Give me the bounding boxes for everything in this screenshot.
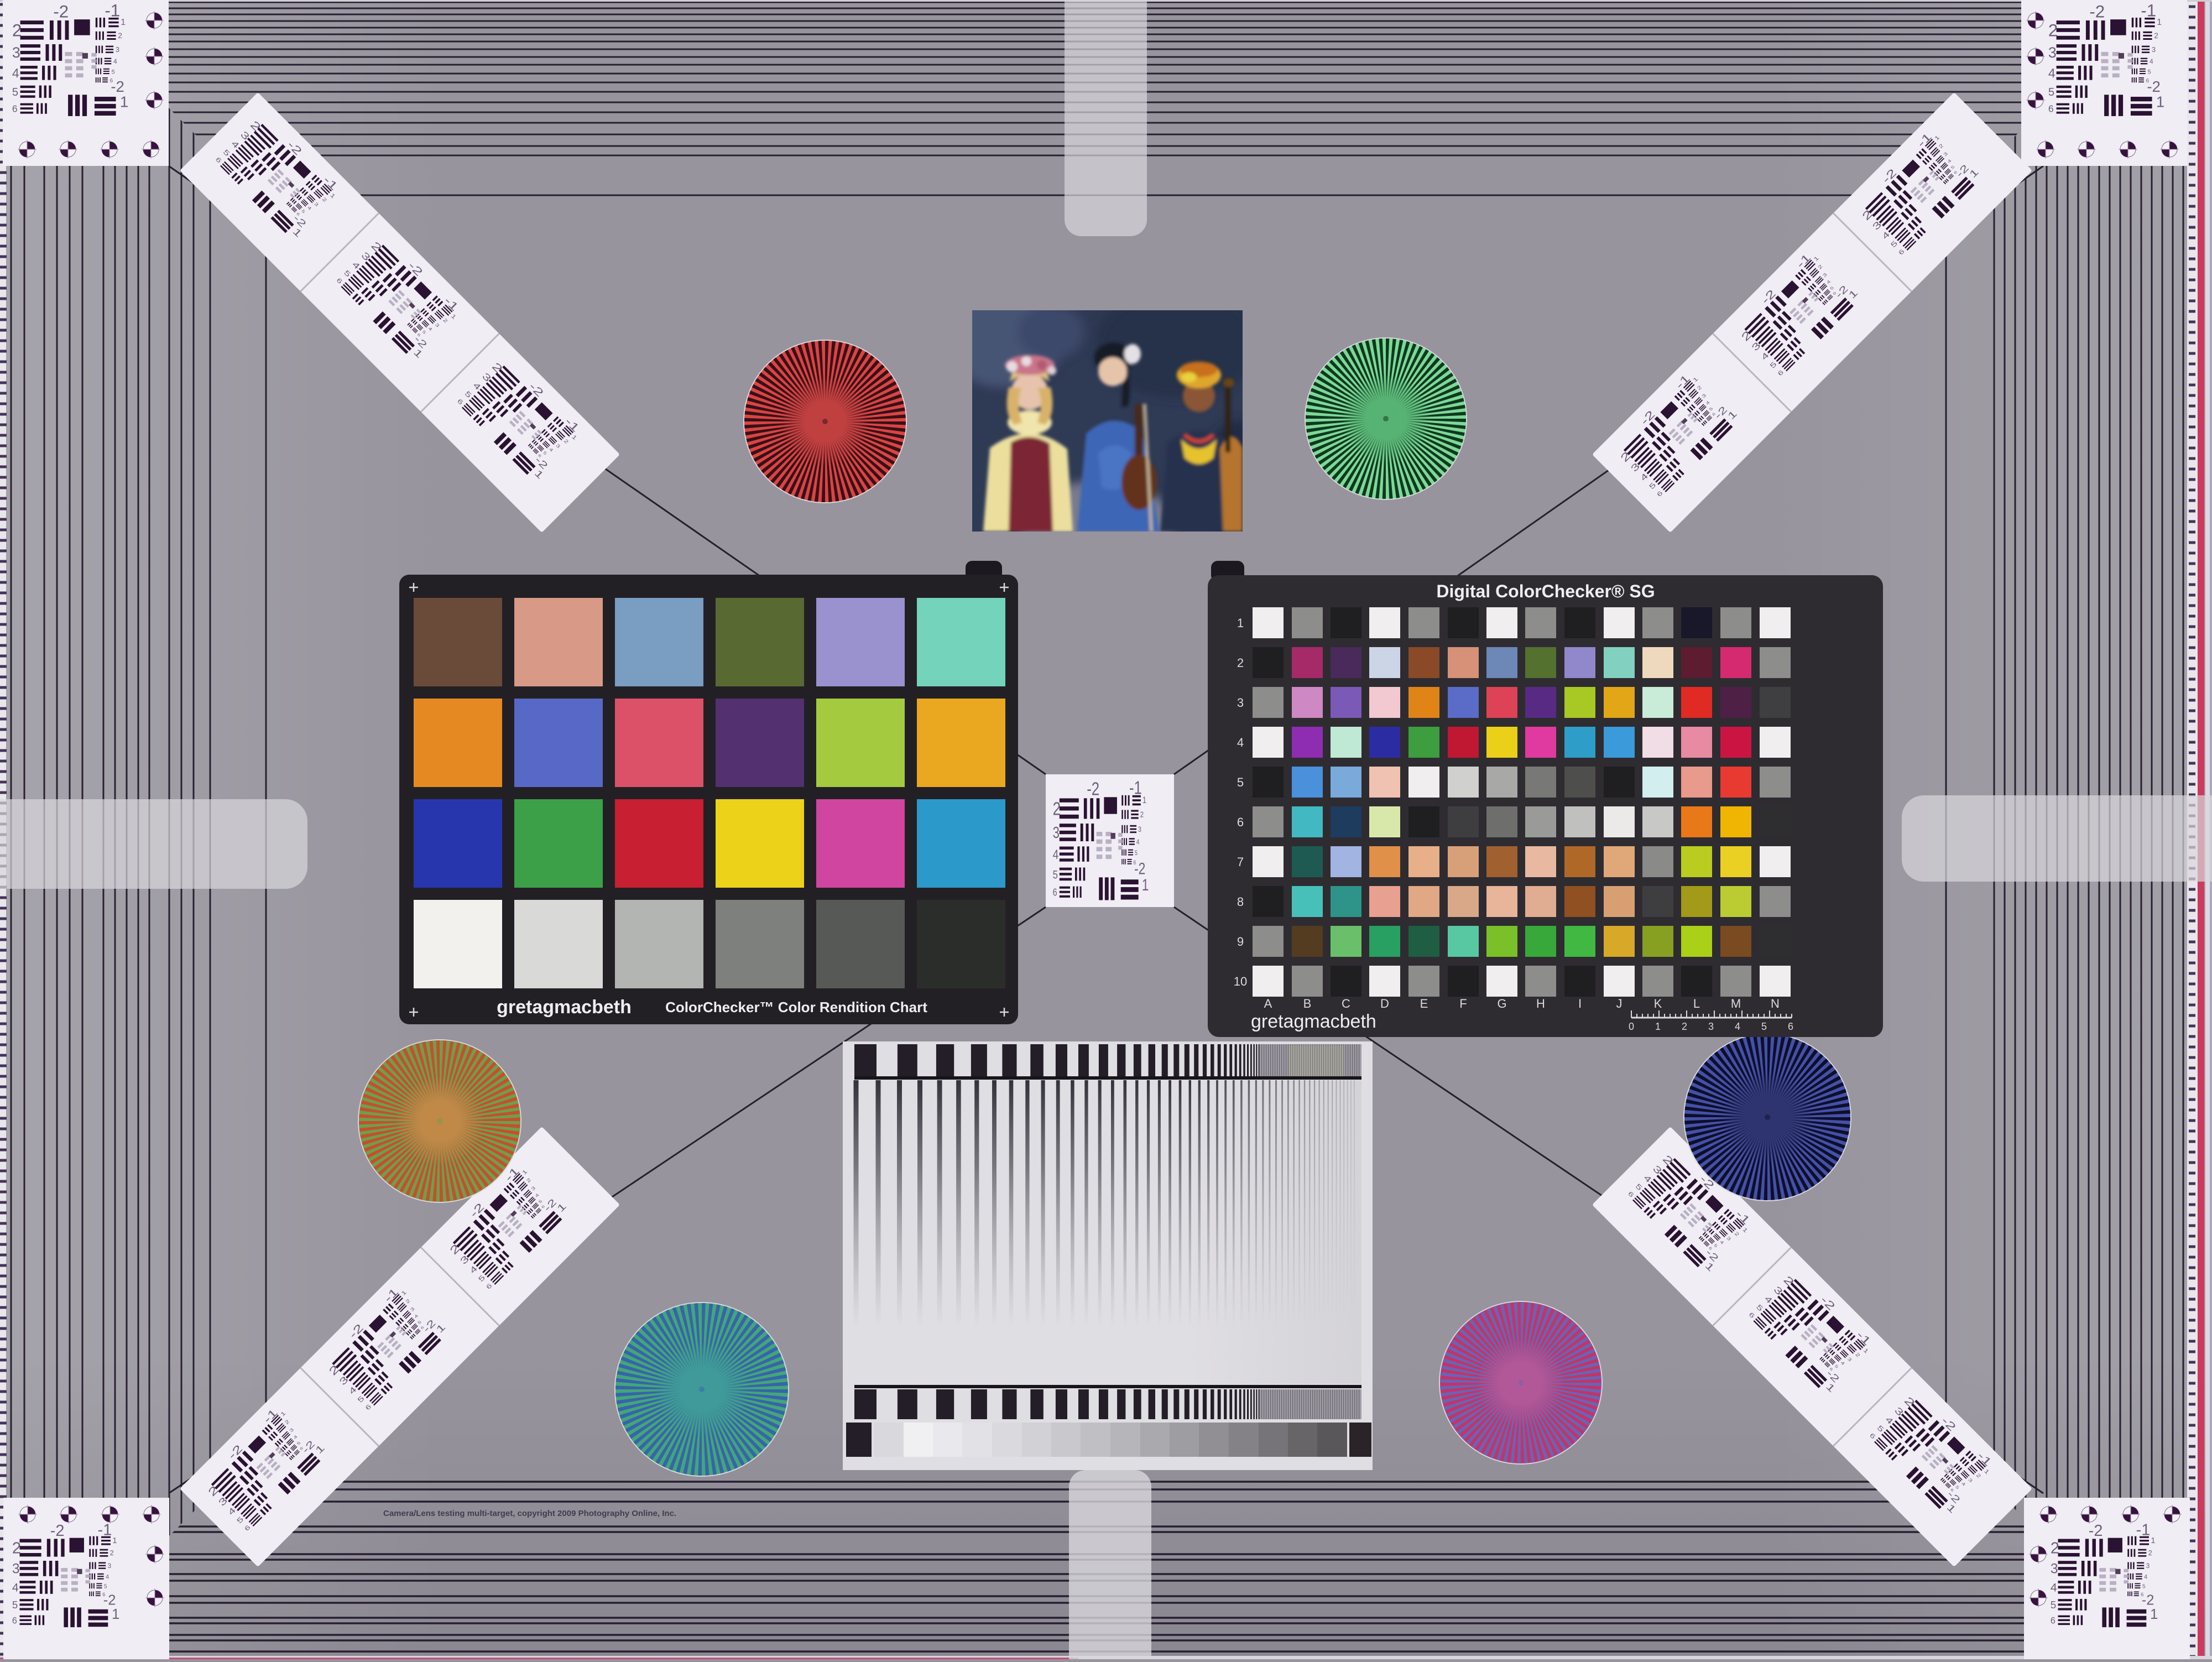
svg-text:C: C — [1342, 997, 1350, 1010]
svg-text:5: 5 — [1237, 775, 1244, 789]
svg-text:L: L — [1693, 997, 1700, 1010]
svg-text:B: B — [1303, 997, 1312, 1010]
svg-text:gretagmacbeth: gretagmacbeth — [497, 997, 632, 1018]
svg-text:E: E — [1420, 997, 1428, 1010]
svg-text:1: 1 — [1237, 616, 1244, 630]
svg-text:2: 2 — [1682, 1021, 1687, 1032]
svg-text:N: N — [1771, 997, 1780, 1010]
svg-text:5: 5 — [1761, 1021, 1767, 1032]
svg-text:6: 6 — [1237, 815, 1244, 829]
svg-text:2: 2 — [1237, 656, 1244, 670]
svg-text:3: 3 — [1237, 696, 1244, 710]
svg-text:D: D — [1380, 997, 1389, 1010]
svg-text:4: 4 — [1735, 1021, 1740, 1032]
svg-text:6: 6 — [1788, 1021, 1793, 1032]
svg-text:Digital ColorChecker® SG: Digital ColorChecker® SG — [1436, 581, 1655, 601]
svg-text:F: F — [1459, 997, 1467, 1010]
svg-text:3: 3 — [1708, 1021, 1714, 1032]
svg-text:K: K — [1654, 997, 1662, 1010]
svg-text:10: 10 — [1234, 975, 1247, 988]
svg-text:4: 4 — [1237, 736, 1244, 749]
svg-text:A: A — [1264, 997, 1272, 1010]
svg-text:7: 7 — [1237, 855, 1244, 869]
svg-text:ColorChecker™ Color Rendition: ColorChecker™ Color Rendition Chart — [665, 999, 927, 1015]
svg-text:H: H — [1536, 997, 1545, 1010]
svg-text:J: J — [1616, 997, 1623, 1010]
svg-text:M: M — [1731, 997, 1741, 1010]
svg-text:0: 0 — [1629, 1021, 1634, 1032]
svg-text:9: 9 — [1237, 935, 1244, 949]
svg-text:I: I — [1578, 997, 1582, 1010]
svg-text:G: G — [1497, 997, 1506, 1010]
svg-text:1: 1 — [1655, 1021, 1661, 1032]
svg-text:8: 8 — [1237, 895, 1244, 909]
svg-text:gretagmacbeth: gretagmacbeth — [1251, 1011, 1376, 1032]
svg-text:Camera/Lens testing multi-targ: Camera/Lens testing multi-target, copyri… — [383, 1509, 676, 1518]
